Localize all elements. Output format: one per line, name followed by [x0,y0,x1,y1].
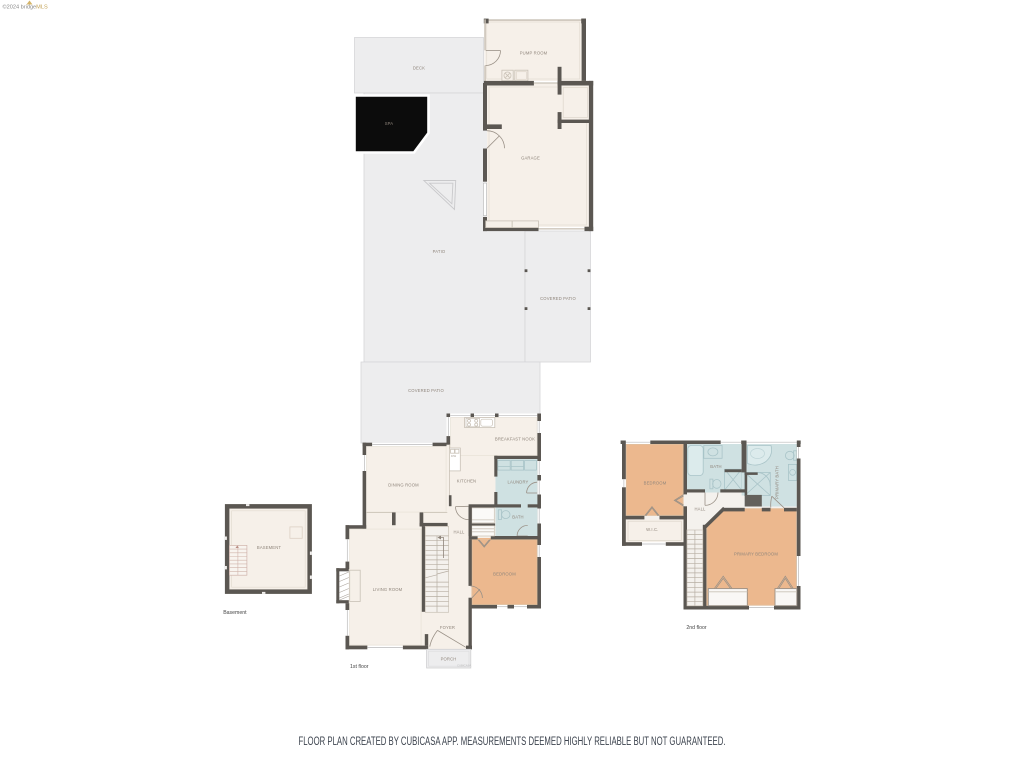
svg-text:DINING ROOM: DINING ROOM [388,483,419,488]
svg-text:BATH: BATH [512,515,523,520]
svg-text:PRIMARY BATH: PRIMARY BATH [775,466,780,499]
svg-text:LIVING ROOM: LIVING ROOM [373,587,403,592]
svg-text:SPA: SPA [385,121,394,126]
svg-text:PRIMARY BEDROOM: PRIMARY BEDROOM [734,552,778,557]
svg-text:COVERED PATIO: COVERED PATIO [540,296,576,301]
svg-text:©2024 bridgeMLS: ©2024 bridgeMLS [3,4,48,11]
svg-text:D/W: D/W [451,454,457,458]
svg-text:BREAKFAST NOOK: BREAKFAST NOOK [495,437,535,442]
svg-text:BASEMENT: BASEMENT [257,545,282,550]
svg-text:PUMP ROOM: PUMP ROOM [520,51,548,56]
svg-text:W.I.C.: W.I.C. [646,527,658,532]
svg-text:KITCHEN: KITCHEN [457,479,476,484]
svg-text:1st floor: 1st floor [350,664,369,670]
svg-text:DECK: DECK [413,66,425,71]
svg-text:BATH: BATH [710,464,721,469]
svg-text:Basement: Basement [223,610,247,616]
svg-text:FLOOR PLAN CREATED BY CUBICASA: FLOOR PLAN CREATED BY CUBICASA APP. MEAS… [299,734,726,748]
svg-text:HALL: HALL [453,530,465,535]
svg-text:LAUNDRY: LAUNDRY [508,480,529,485]
svg-text:BEDROOM: BEDROOM [644,481,667,486]
svg-text:FOYER: FOYER [440,625,455,630]
svg-text:2nd floor: 2nd floor [686,625,706,631]
svg-text:COVERED PATIO: COVERED PATIO [408,388,444,393]
svg-text:CUBICASA: CUBICASA [457,664,471,668]
svg-text:GARAGE: GARAGE [521,156,540,161]
svg-text:HALL: HALL [694,507,706,512]
svg-text:BEDROOM: BEDROOM [493,572,516,577]
svg-text:PORCH: PORCH [441,657,457,662]
svg-text:PATIO: PATIO [433,249,446,254]
